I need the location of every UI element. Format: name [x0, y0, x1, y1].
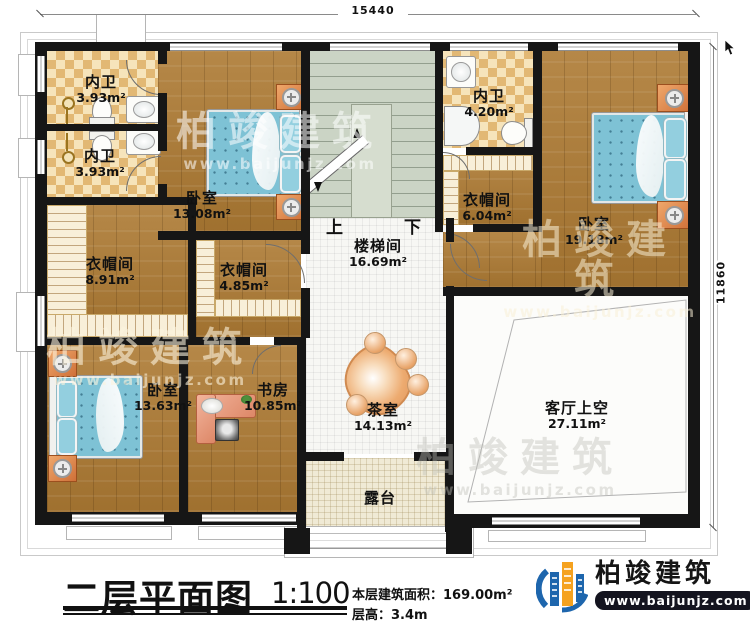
nightstand-knob [53, 459, 72, 478]
brand-logo: 柏竣建筑 www.baijunjz.com [536, 556, 750, 614]
pillow [57, 418, 77, 455]
brand-name: 柏竣建筑 [595, 560, 750, 589]
brand-website: www.baijunjz.com [595, 591, 750, 610]
wall [443, 287, 700, 296]
sink-basin [133, 133, 155, 150]
room-name: 衣帽间 [85, 256, 134, 273]
window [37, 56, 45, 92]
room-name: 卧室 [134, 382, 192, 399]
window [37, 296, 45, 346]
wall [688, 42, 700, 528]
nightstand-knob [53, 354, 72, 373]
room-name: 衣帽间 [219, 262, 268, 279]
floor-height-text: 层高：3.4m [352, 604, 428, 623]
stool [407, 374, 429, 396]
wall [35, 197, 196, 205]
wall [473, 224, 535, 232]
wardrobe-cloak-mid-bottom [215, 299, 301, 317]
brand-logo-icon [536, 556, 588, 614]
nightstand [657, 201, 692, 229]
room-area: 13.08m² [173, 207, 231, 221]
towel-bar-icon [62, 97, 75, 110]
room-name: 茶室 [354, 402, 412, 419]
window [202, 514, 296, 522]
room-name: 内卫 [464, 88, 513, 105]
wall [533, 42, 542, 232]
wall [466, 147, 535, 155]
room-label-bath-top-2: 内卫 3.93m² [75, 148, 124, 179]
stair-down-label: 下 [404, 213, 421, 238]
window-sill [488, 530, 646, 542]
floor-plan-canvas: 15440 11860 上 下 [0, 0, 750, 628]
window [72, 514, 164, 522]
room-name: 卧室 [173, 190, 231, 207]
dimension-right-value: 11860 [715, 261, 728, 305]
room-area: 3.93m² [76, 91, 125, 105]
window [492, 517, 640, 525]
wall [158, 231, 310, 240]
stool [395, 348, 417, 370]
wall [158, 184, 167, 197]
pillow [664, 159, 686, 200]
plan-scale: 1:100 [271, 576, 350, 610]
window [330, 43, 430, 51]
stair-landing [351, 104, 392, 218]
room-label-bedroom-right: 卧室 19.18m² [565, 216, 623, 247]
stool [364, 332, 386, 354]
wall [301, 240, 310, 254]
terrace-railing-lines [310, 533, 446, 549]
room-name: 内卫 [75, 148, 124, 165]
sink-icon [126, 96, 161, 123]
nightstand [48, 350, 77, 377]
nightstand [48, 455, 77, 482]
brand-text-block: 柏竣建筑 www.baijunjz.com [595, 560, 750, 611]
pillow [664, 118, 686, 159]
room-label-bedroom-left: 卧室 13.63m² [134, 382, 192, 413]
room-name: 露台 [364, 490, 396, 507]
headboard [49, 374, 57, 458]
room-name: 衣帽间 [462, 192, 511, 209]
wall [158, 50, 167, 64]
window [558, 43, 678, 51]
bed-sheet [252, 112, 280, 190]
sink-icon [126, 128, 161, 155]
room-label-bath-top-1: 内卫 3.93m² [76, 74, 125, 105]
room-area: 14.13m² [354, 419, 412, 433]
pillow [280, 155, 301, 193]
room-label-terrace: 露台 [364, 490, 396, 507]
hat-icon [201, 398, 223, 414]
room-name: 内卫 [76, 74, 125, 91]
nightstand-knob [282, 88, 301, 107]
wall [301, 42, 310, 232]
floor-area-text: 本层建筑面积：169.00m² [352, 584, 512, 603]
room-label-stairwell: 楼梯间 16.69m² [349, 238, 407, 269]
sink-basin [451, 62, 471, 82]
room-label-bedroom-top: 卧室 13.08m² [173, 190, 231, 221]
terrace-post [446, 528, 472, 554]
room-area: 4.20m² [464, 105, 513, 119]
terrace-post [284, 528, 310, 554]
wall [179, 345, 188, 512]
computer-monitor-icon [215, 419, 239, 441]
window [450, 43, 528, 51]
wall [446, 296, 454, 452]
room-name: 卧室 [565, 216, 623, 233]
room-name: 客厅上空 [545, 400, 609, 417]
stair-up-label: 上 [326, 213, 343, 238]
window [37, 140, 45, 174]
wall [445, 452, 454, 532]
sink-icon [446, 56, 476, 88]
wardrobe-cloak-left-side [47, 205, 87, 318]
room-area: 19.18m² [565, 233, 623, 247]
room-label-living-void: 客厅上空 27.11m² [545, 400, 609, 431]
bed-sheet [636, 115, 664, 197]
wall [446, 218, 454, 242]
room-label-tea-room: 茶室 14.13m² [354, 402, 412, 433]
wall [435, 224, 443, 232]
sink-basin [133, 101, 155, 118]
wall [274, 337, 306, 345]
stair-arrow-up-icon [353, 128, 361, 138]
wall [35, 42, 47, 525]
room-area: 6.04m² [462, 209, 511, 223]
wall [35, 337, 250, 345]
nightstand [657, 84, 692, 112]
room-area: 10.85m² [244, 399, 302, 413]
room-label-cloak-left: 衣帽间 8.91m² [85, 256, 134, 287]
wardrobe-cloak-mid-side [196, 240, 215, 317]
window [170, 43, 282, 51]
nightstand-knob [665, 206, 684, 225]
room-area: 13.63m² [134, 399, 192, 413]
towel-bar-icon [62, 151, 75, 164]
wall [158, 93, 167, 151]
room-name: 书房 [244, 382, 302, 399]
mouse-cursor-icon [724, 40, 738, 57]
nightstand-knob [282, 198, 301, 217]
wall [301, 288, 310, 338]
room-name: 楼梯间 [349, 238, 407, 255]
room-area: 27.11m² [545, 417, 609, 431]
wall [297, 452, 306, 532]
room-area: 3.93m² [75, 165, 124, 179]
title-underline-thin [63, 613, 347, 615]
room-area: 8.91m² [85, 273, 134, 287]
pillow [280, 115, 301, 153]
room-label-cloak-mid: 衣帽间 4.85m² [219, 262, 268, 293]
nightstand-knob [665, 89, 684, 108]
room-label-bath-right: 内卫 4.20m² [464, 88, 513, 119]
wardrobe-cloak-right-side [443, 171, 459, 225]
wall [435, 42, 443, 232]
dimension-top-value: 15440 [338, 4, 408, 17]
room-label-cloak-right: 衣帽间 6.04m² [462, 192, 511, 223]
room-area: 4.85m² [219, 279, 268, 293]
room-area: 16.69m² [349, 255, 407, 269]
window-sill [66, 526, 172, 540]
wardrobe-cloak-left-bottom [47, 314, 188, 337]
wall [47, 124, 162, 131]
stair-arrow-down-icon [314, 182, 322, 192]
towel-bar [66, 133, 68, 151]
pillow [57, 381, 77, 418]
room-label-study: 书房 10.85m² [244, 382, 302, 413]
